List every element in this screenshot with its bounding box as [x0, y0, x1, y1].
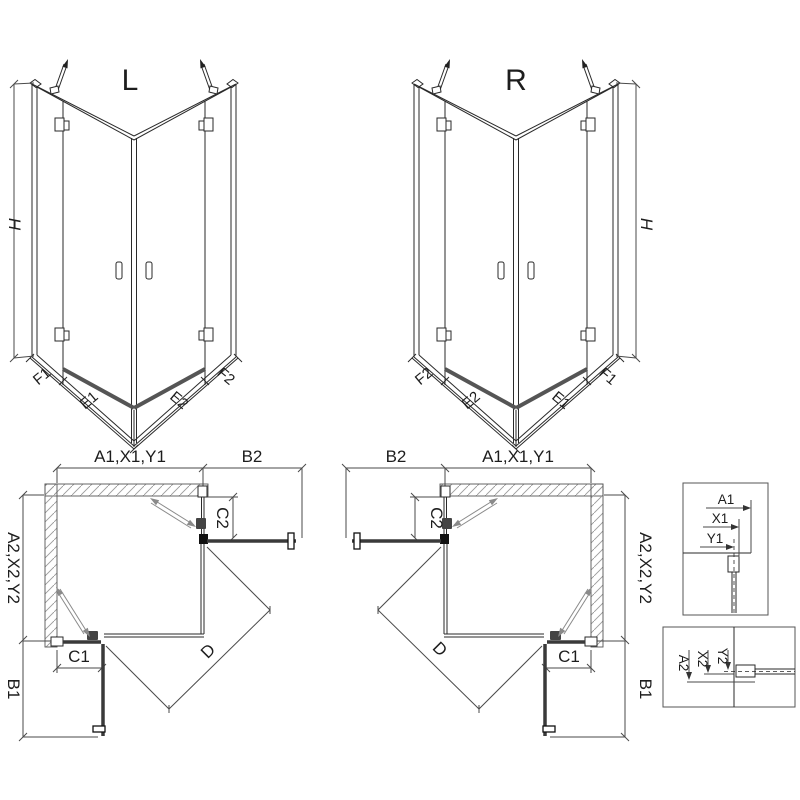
variant-label-left: L [122, 64, 139, 97]
dim-d-plan-left: D [197, 640, 219, 662]
segment-f2-right: F2 [412, 364, 436, 388]
dim-c1-plan-right: C1 [558, 647, 580, 666]
wall-side-left-plan [45, 484, 57, 647]
height-dim-label-right: H [637, 218, 656, 231]
dim-b2-plan-left: B2 [242, 447, 263, 466]
iso-view-right: R H F2 E2 E1 F1 [408, 59, 656, 453]
detail-dim-a1: A1 [718, 492, 735, 507]
segment-f1-left: F1 [30, 364, 54, 388]
dim-b2-plan-right: B2 [386, 447, 407, 466]
height-dim-label-left: H [5, 218, 24, 231]
detail-dim-y1: Y1 [707, 531, 724, 546]
variant-label-right: R [505, 64, 527, 97]
wall-side-right-plan [591, 484, 603, 647]
detail-dim-a2: A2 [676, 655, 691, 672]
detail-dim-y2: Y2 [715, 648, 730, 665]
plan-view-left: A1,X1,Y1 B2 A2,X2,Y2 B1 C2 C1 D [4, 447, 306, 741]
detail-dim-x1: X1 [712, 511, 729, 526]
dim-d-plan-right: D [429, 638, 451, 660]
dim-c2-plan-left: C2 [213, 507, 232, 529]
dim-b1-plan-left: B1 [4, 679, 23, 700]
diagram-canvas: L H F1 E1 E2 F2 R H F2 E2 E1 F1 A1,X1,Y1… [0, 0, 800, 800]
detail-dim-x2: X2 [695, 651, 710, 668]
segment-f2-left: F2 [214, 364, 238, 388]
detail-box-horizontal: A1 X1 Y1 [683, 483, 768, 615]
dim-a1x1y1-plan-right: A1,X1,Y1 [482, 447, 554, 466]
dim-b1-plan-right: B1 [636, 679, 655, 700]
dim-a2x2y2-plan-right: A2,X2,Y2 [636, 532, 655, 604]
detail-box-vertical: A2 X2 Y2 [663, 627, 795, 707]
wall-top-right-plan [440, 484, 603, 496]
plan-view-right: B2 A1,X1,Y1 A2,X2,Y2 B1 C2 C1 D [342, 447, 655, 741]
dim-c1-plan-left: C1 [68, 647, 90, 666]
segment-f1-right: F1 [596, 364, 620, 388]
dim-a1x1y1-plan-left: A1,X1,Y1 [94, 447, 166, 466]
dim-a2x2y2-plan-left: A2,X2,Y2 [4, 532, 23, 604]
iso-view-left: L H F1 E1 E2 F2 [5, 59, 242, 453]
wall-top-left-plan [45, 484, 208, 496]
shower-enclosure-diagram: L H F1 E1 E2 F2 R H F2 E2 E1 F1 A1,X1,Y1… [0, 0, 800, 800]
dim-c2-plan-right: C2 [427, 507, 446, 529]
